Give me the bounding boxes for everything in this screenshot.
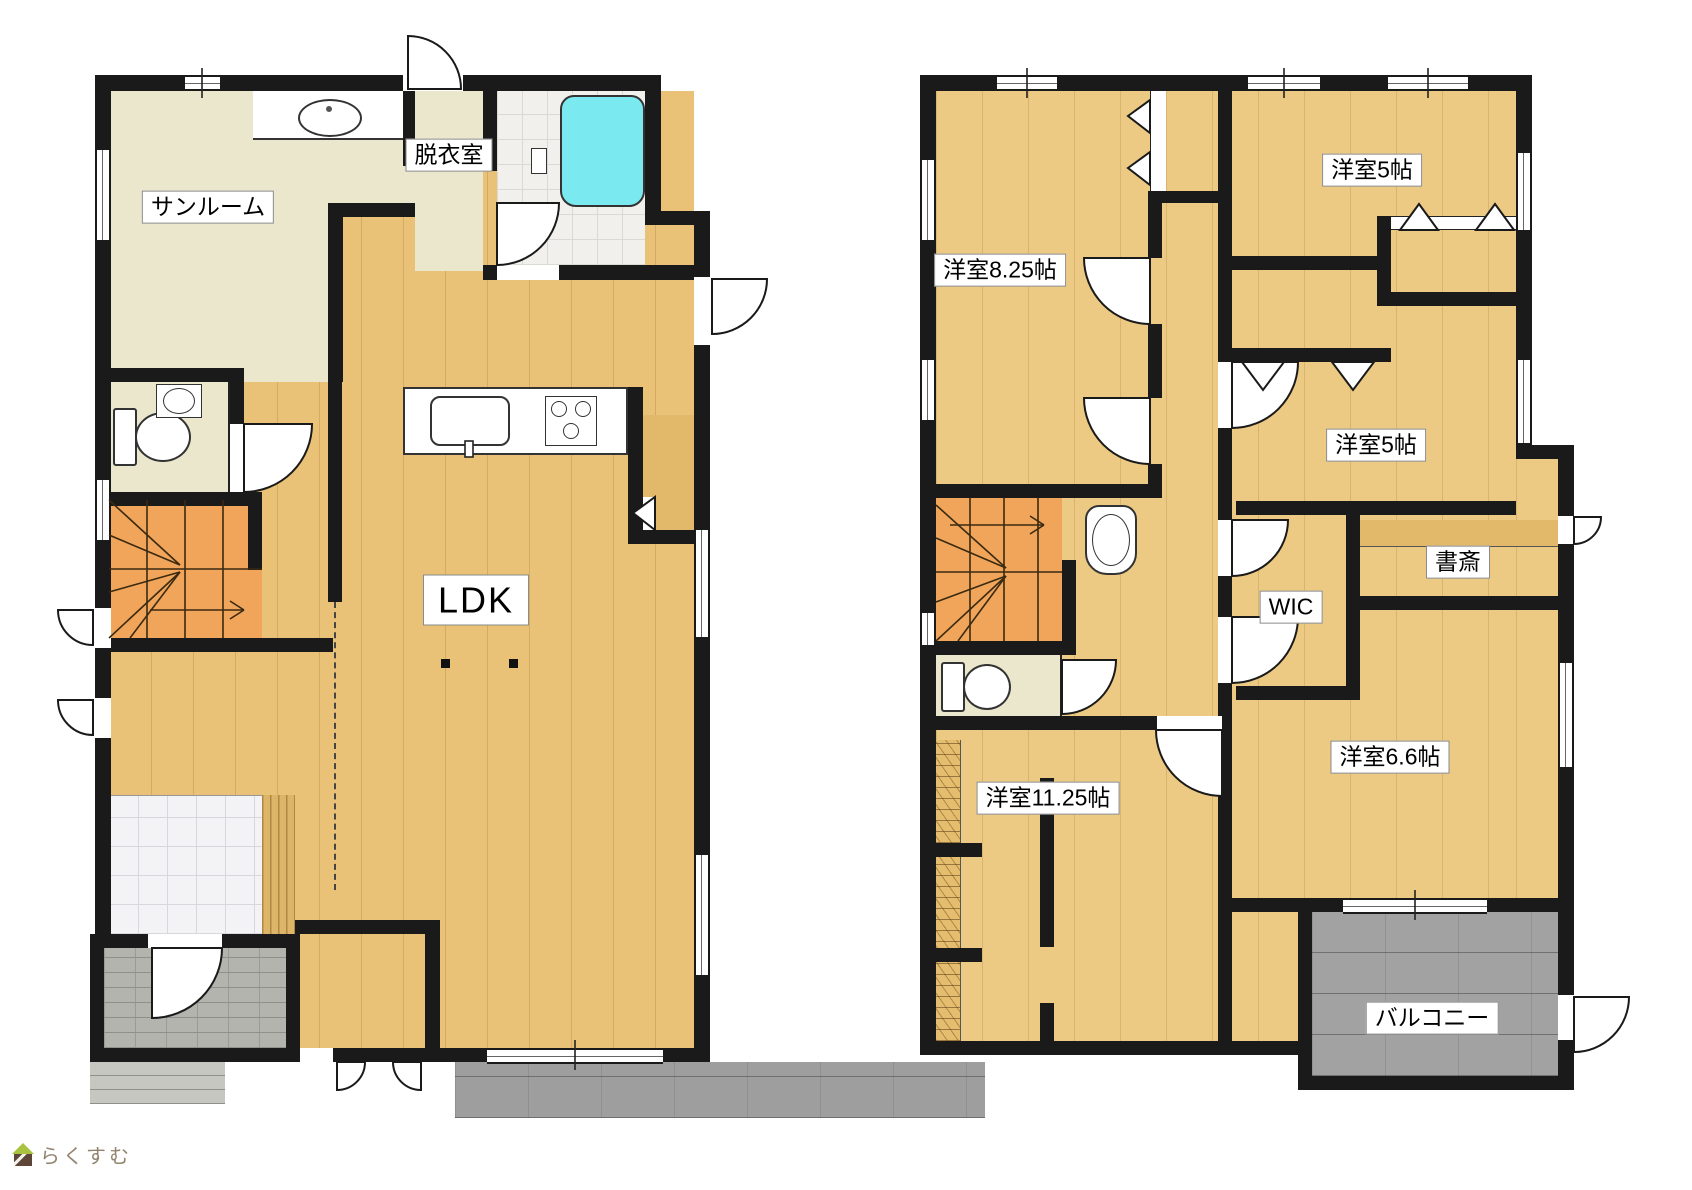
label-room1125: 洋室11.25帖 <box>977 782 1120 815</box>
stair-treads-1f <box>109 500 262 638</box>
logo-house-icon <box>12 1143 34 1166</box>
bifold-door-icon <box>1128 152 1150 185</box>
site-logo: らくすむ <box>12 1140 132 1169</box>
door-arc <box>1232 520 1288 576</box>
door-arc <box>58 700 93 735</box>
label-sunroom: サンルーム <box>142 191 274 224</box>
label-room5a: 洋室5帖 <box>1322 154 1422 187</box>
label-wic: WIC <box>1260 591 1323 624</box>
label-dressing: 脱衣室 <box>406 139 493 172</box>
door-arc <box>408 36 461 89</box>
door-arc <box>393 1062 421 1090</box>
label-ldk: LDK <box>423 575 529 626</box>
bifold-door-icon <box>1400 204 1438 230</box>
door-arc <box>1062 660 1116 714</box>
label-room825: 洋室8.25帖 <box>934 254 1066 287</box>
stair-treads-2f <box>936 498 1062 641</box>
door-arc <box>712 279 767 334</box>
label-balcony: バルコニー <box>1366 1002 1499 1035</box>
door-arc <box>1156 730 1222 796</box>
floor-plan-canvas: サンルーム 脱衣室 LDK <box>0 0 1692 1190</box>
bifold-door-icon <box>633 497 655 530</box>
door-arc <box>1574 997 1629 1052</box>
label-study: 書斎 <box>1426 546 1490 579</box>
bifold-door-icon <box>1476 204 1514 230</box>
bifold-door-icon <box>1332 362 1374 390</box>
label-room66: 洋室6.6帖 <box>1331 741 1450 774</box>
logo-text: らくすむ <box>40 1140 132 1169</box>
door-arc <box>497 203 559 265</box>
door-arc <box>58 610 93 645</box>
door-arc <box>1084 398 1150 464</box>
door-arc <box>244 424 312 492</box>
door-arc <box>1574 517 1601 544</box>
door-arc <box>1084 258 1150 324</box>
bifold-door-icon <box>1128 100 1150 133</box>
door-arc <box>337 1062 365 1090</box>
label-room5b: 洋室5帖 <box>1326 429 1426 462</box>
door-arc <box>152 948 222 1018</box>
door-arc <box>1232 617 1298 683</box>
